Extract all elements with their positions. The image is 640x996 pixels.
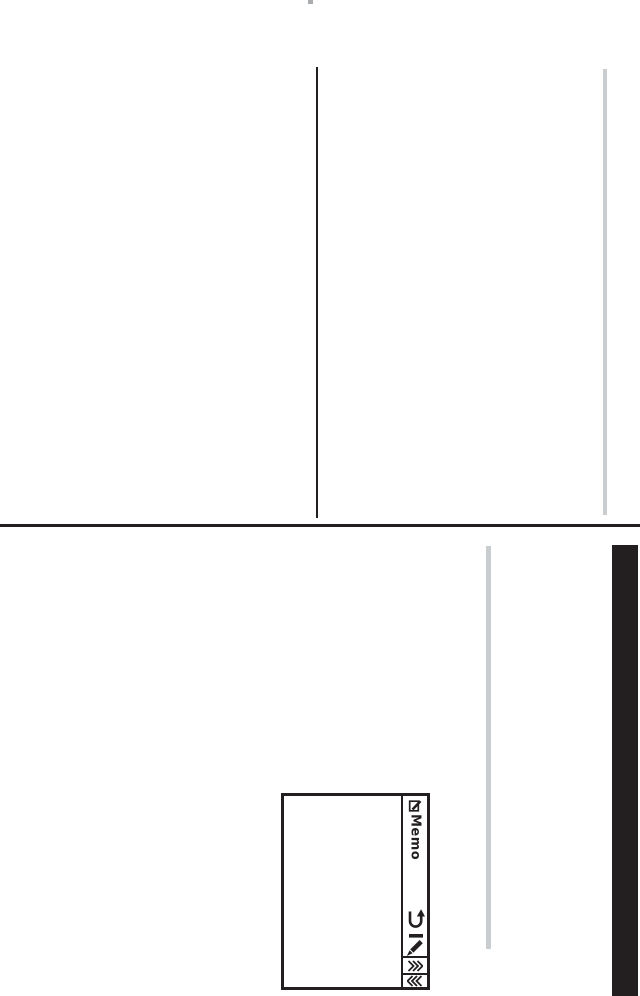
scanned-manual-page: Memo [0,0,640,996]
toolbar-title: Memo [408,814,423,868]
memo-note-pencil-icon [408,796,423,814]
pencil-edit-icon [406,934,424,956]
page-back-button [403,973,427,987]
column-divider-line [316,67,318,518]
top-edge-mark [308,0,313,4]
page-edge-shadow-bottom [486,546,491,949]
undo-arrow-icon [405,906,425,934]
double-chevron-forward-icon [407,960,423,972]
memo-toolbar: Memo [401,796,427,987]
page-separator-rule [0,524,640,527]
page-edge-shadow-top [603,69,607,515]
chapter-edge-tab [612,545,638,996]
device-screen-figure: Memo [281,793,430,990]
memo-drawing-canvas [284,796,401,987]
double-chevron-back-icon [407,975,423,987]
page-forward-button [403,956,427,973]
